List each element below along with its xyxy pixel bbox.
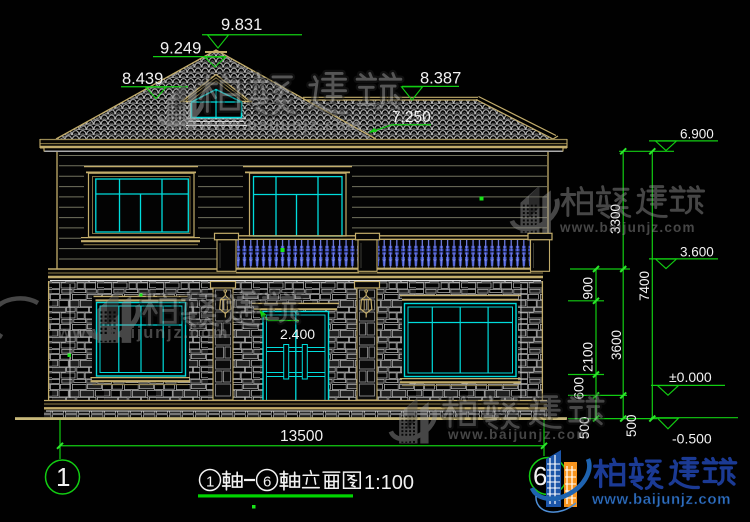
svg-text:2100: 2100 — [581, 342, 596, 372]
svg-text:www.baijunjz.com: www.baijunjz.com — [591, 491, 731, 508]
svg-text:3.600: 3.600 — [680, 245, 714, 260]
svg-text:6: 6 — [533, 461, 547, 491]
svg-text:-0.500: -0.500 — [672, 431, 712, 447]
svg-text:6: 6 — [263, 474, 271, 491]
svg-text:7400: 7400 — [637, 271, 652, 301]
svg-text:±0.000: ±0.000 — [669, 369, 712, 385]
svg-text:13500: 13500 — [280, 428, 323, 445]
svg-text:6.900: 6.900 — [680, 127, 714, 142]
svg-text:www.baijunjz.com: www.baijunjz.com — [559, 220, 696, 235]
svg-text:2.400: 2.400 — [280, 326, 315, 342]
svg-text:www.baijunjz.com: www.baijunjz.com — [57, 324, 229, 342]
svg-text:www.baijunjz.com: www.baijunjz.com — [199, 117, 362, 134]
svg-text:9.831: 9.831 — [221, 16, 262, 34]
svg-text:500: 500 — [624, 414, 639, 437]
svg-text:8.439: 8.439 — [122, 70, 163, 88]
svg-text:www.baijunjz.com: www.baijunjz.com — [447, 427, 590, 442]
svg-text:9.249: 9.249 — [160, 40, 201, 58]
svg-text:1: 1 — [206, 474, 214, 491]
svg-text:1:100: 1:100 — [364, 472, 414, 494]
svg-text:1: 1 — [56, 462, 70, 492]
svg-text:900: 900 — [581, 277, 596, 300]
svg-text:8.387: 8.387 — [420, 70, 461, 88]
svg-text:3600: 3600 — [609, 330, 624, 360]
